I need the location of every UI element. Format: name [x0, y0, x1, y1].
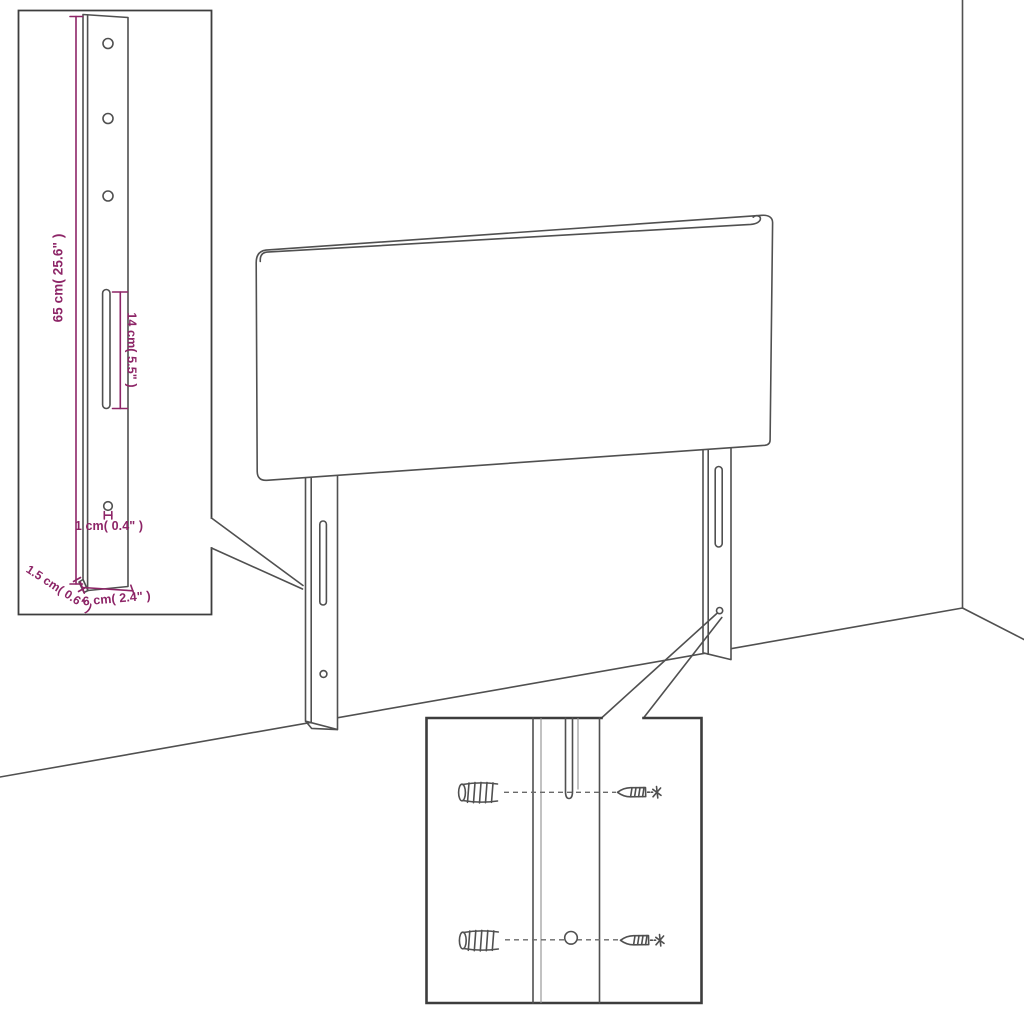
mounting-detail-inset: [427, 614, 722, 1004]
right-leg-slot: [715, 467, 722, 548]
right-leg: [703, 445, 731, 660]
strip-hole: [565, 932, 578, 945]
callout-leader-top: [212, 518, 304, 586]
left-leg-slot: [320, 521, 327, 605]
bracket-hole-3: [103, 191, 113, 201]
floor-line-right: [963, 608, 1024, 640]
dimension-height-label: 65 cm( 25.6" ): [51, 234, 66, 323]
diagram-canvas: 65 cm( 25.6" ) 14 cm( 5.5" ) 1 cm( 0.4" …: [0, 0, 1024, 1024]
headboard-panel: [256, 215, 772, 480]
callout-leader-bottom: [212, 548, 303, 589]
bracket-hole-2: [103, 114, 113, 124]
bracket-small-hole: [104, 502, 113, 511]
bracket-slot: [103, 290, 110, 409]
dimension-slot-label: 14 cm( 5.5" ): [125, 312, 139, 387]
dimension-hole-label: 1 cm( 0.4" ): [75, 519, 143, 533]
callout-leader-left: [602, 614, 717, 719]
left-leg-hole: [320, 671, 327, 678]
callout-leader-right: [644, 618, 722, 719]
bracket-hole-1: [103, 39, 113, 49]
right-leg-hole: [717, 608, 723, 614]
left-leg: [306, 458, 338, 730]
